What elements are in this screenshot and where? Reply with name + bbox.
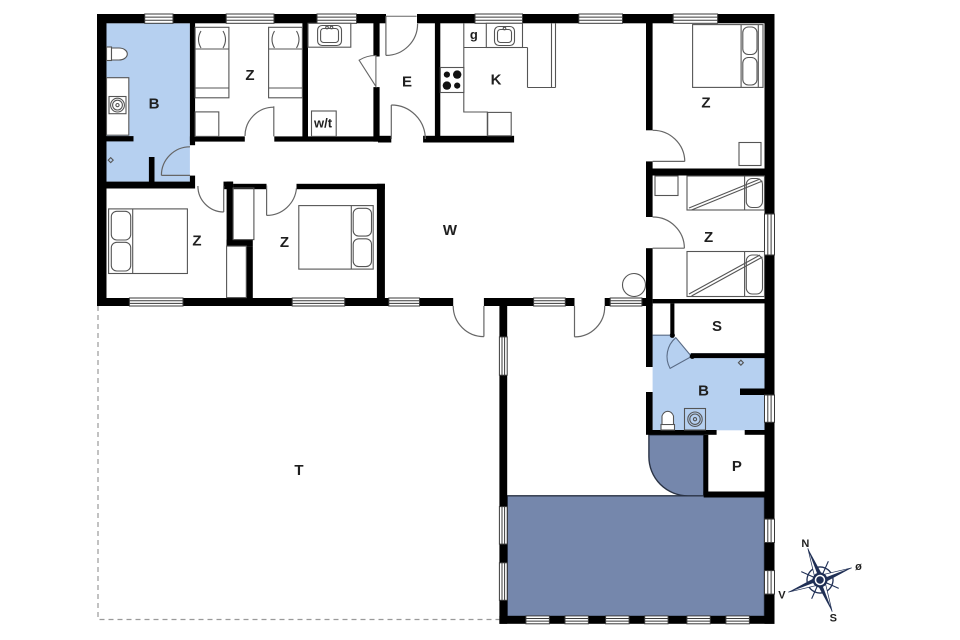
svg-text:K: K: [491, 71, 502, 88]
svg-text:Z: Z: [192, 232, 201, 249]
svg-text:W: W: [443, 222, 458, 239]
svg-text:Z: Z: [701, 94, 710, 111]
svg-text:Z: Z: [704, 229, 713, 246]
svg-text:Z: Z: [245, 67, 254, 84]
svg-text:g: g: [470, 27, 478, 42]
svg-text:B: B: [698, 382, 709, 399]
svg-text:P: P: [732, 458, 742, 475]
svg-text:T: T: [294, 462, 303, 479]
svg-text:ø: ø: [855, 561, 862, 573]
svg-text:S: S: [830, 613, 837, 625]
svg-text:S: S: [712, 318, 722, 335]
svg-text:V: V: [778, 590, 786, 602]
svg-text:Z: Z: [280, 234, 289, 251]
svg-text:B: B: [149, 95, 160, 112]
svg-text:w/t: w/t: [313, 116, 333, 131]
svg-text:N: N: [801, 538, 809, 550]
svg-text:E: E: [402, 73, 412, 90]
